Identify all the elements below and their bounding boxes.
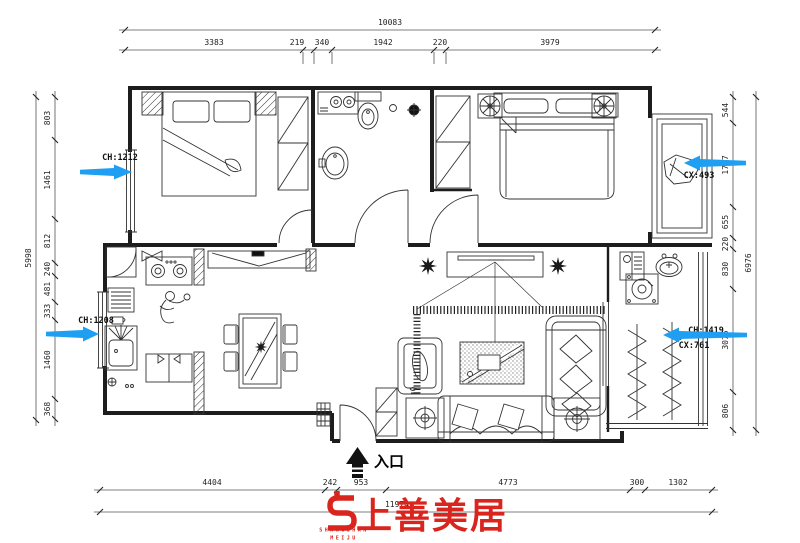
dim-right-seg-0: 544 — [722, 102, 730, 118]
dim-left-seg-0: 803 — [44, 110, 52, 126]
dim-top-seg-4: 220 — [432, 39, 448, 47]
flower-decorations — [255, 257, 567, 353]
annotation-right-upper: CX:493 — [683, 172, 716, 181]
dim-right-seg-6: 806 — [722, 403, 730, 419]
floor-plan-page: 10083 3383 219 340 1942 220 3979 5998 80… — [0, 0, 800, 543]
dim-top-seg-5: 3979 — [539, 39, 560, 47]
hatched-piers — [142, 92, 316, 414]
dim-bottom-seg-5: 1302 — [667, 479, 688, 487]
logo-brand-name: 上善美居 — [355, 499, 509, 535]
dim-left-seg-5: 333 — [44, 303, 52, 319]
dim-top-seg-0: 3383 — [203, 39, 224, 47]
dim-left-seg-1: 1461 — [44, 169, 52, 190]
dim-right-overall: 6976 — [745, 252, 753, 273]
dim-right-seg-3: 220 — [722, 236, 730, 252]
dim-left-seg-3: 240 — [44, 261, 52, 277]
bathroom-furniture — [318, 92, 470, 188]
doors — [279, 190, 478, 441]
dim-bottom-seg-1: 242 — [322, 479, 338, 487]
dim-top-seg-2: 340 — [314, 39, 330, 47]
bedroom1-furniture — [162, 92, 308, 196]
dim-bottom-seg-4: 300 — [629, 479, 645, 487]
dim-right-seg-1: 1767 — [722, 154, 730, 175]
balcony-furniture — [620, 252, 682, 420]
bedroom2-furniture — [478, 93, 698, 199]
dim-bottom-seg-2: 953 — [353, 479, 369, 487]
dining-furniture — [208, 251, 310, 388]
dim-top-overall: 10083 — [377, 19, 403, 27]
dim-left-seg-4: 481 — [44, 281, 52, 297]
annotation-right-lower-2: CX:761 — [678, 342, 711, 351]
dim-right-seg-4: 830 — [722, 261, 730, 277]
annotation-right-lower-1: CH:1419 — [687, 327, 725, 336]
kitchen-furniture — [105, 247, 192, 388]
living-furniture — [317, 252, 606, 442]
dim-top-seg-3: 1942 — [372, 39, 393, 47]
dim-left-overall: 5998 — [25, 247, 33, 268]
annotation-left-upper: CH:1212 — [101, 154, 139, 163]
dim-left-seg-6: 1460 — [44, 349, 52, 370]
dim-bottom-seg-3: 4773 — [497, 479, 518, 487]
dim-right-seg-2: 655 — [722, 214, 730, 230]
dim-left-seg-2: 812 — [44, 233, 52, 249]
logo-en-line2: MEIJU — [329, 537, 359, 542]
entrance-arrow-icon — [346, 447, 369, 478]
dim-bottom-seg-0: 4404 — [201, 479, 222, 487]
dim-top-seg-1: 219 — [289, 39, 305, 47]
logo-mark — [328, 491, 354, 528]
dim-left-seg-7: 368 — [44, 401, 52, 417]
annotation-left-lower: CH:1208 — [77, 317, 115, 326]
entrance-label: 入口 — [373, 455, 405, 470]
